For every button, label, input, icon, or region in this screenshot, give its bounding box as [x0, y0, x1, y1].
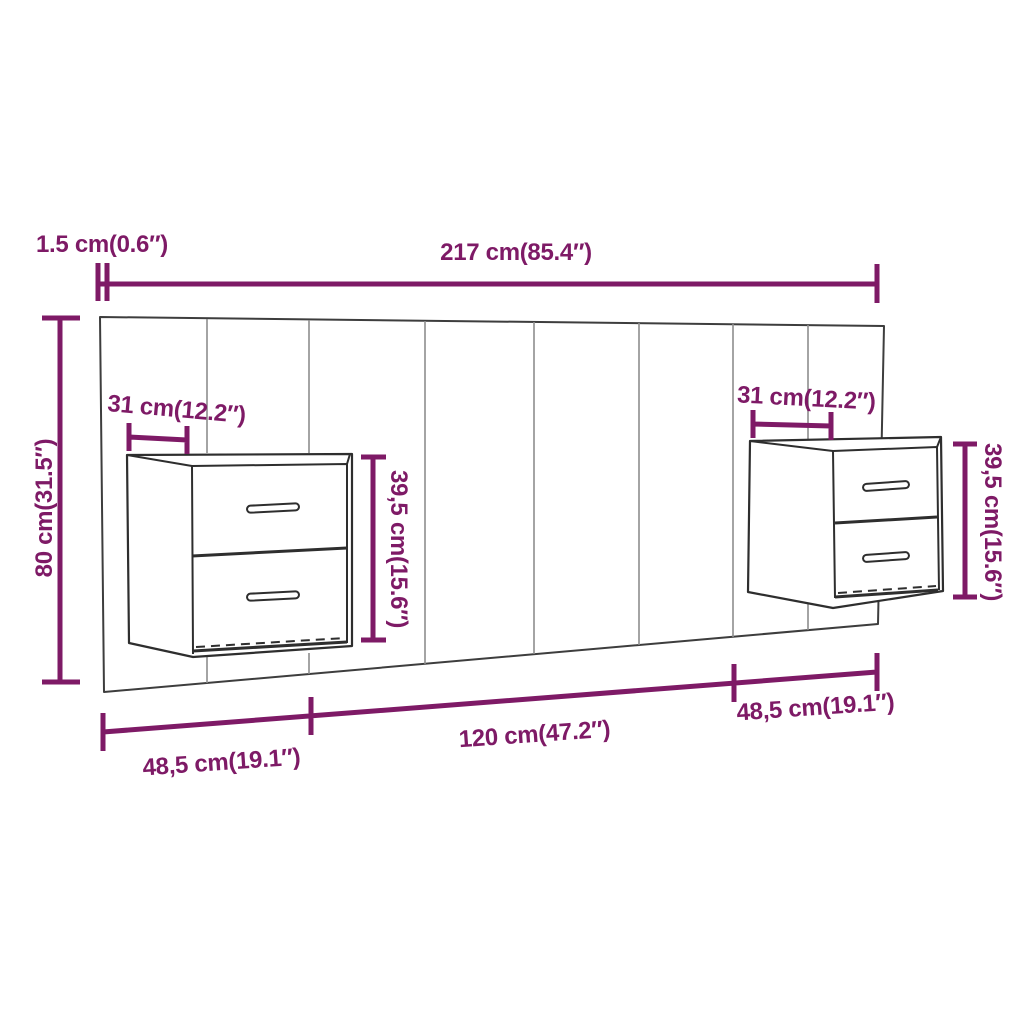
nightstand-right: [748, 437, 943, 608]
nightstand-left-outline: [127, 454, 352, 657]
bottom-right-width-label: 48,5 cm(19.1″): [736, 689, 896, 727]
nightstand-left: [127, 454, 352, 657]
bottom-left-width-label: 48,5 cm(19.1″): [142, 744, 302, 782]
bottom-center-width-label: 120 cm(47.2″): [458, 716, 611, 754]
total-height-label: 80 cm(31.5″): [31, 439, 58, 578]
dim-right-nightstand-height: 39,5 cm(15.6″): [953, 443, 1006, 601]
dim-line: [98, 263, 877, 303]
dim-total-height: 80 cm(31.5″): [31, 318, 80, 682]
headboard-dimension-diagram: 1.5 cm(0.6″) 217 cm(85.4″) 80 cm(31.5″) …: [0, 0, 1024, 1024]
drawer-handle: [247, 591, 299, 601]
drawer-handle: [247, 503, 299, 513]
total-width-label: 217 cm(85.4″): [440, 239, 592, 266]
dim-total-width: 1.5 cm(0.6″) 217 cm(85.4″): [36, 231, 877, 303]
right-nightstand-height-label: 39,5 cm(15.6″): [979, 443, 1006, 601]
dimension-diagram-page: 1.5 cm(0.6″) 217 cm(85.4″) 80 cm(31.5″) …: [0, 0, 1024, 1024]
edge-thickness-label: 1.5 cm(0.6″): [36, 231, 168, 258]
left-nightstand-height-label: 39,5 cm(15.6″): [385, 470, 412, 628]
dim-line: [953, 444, 977, 597]
